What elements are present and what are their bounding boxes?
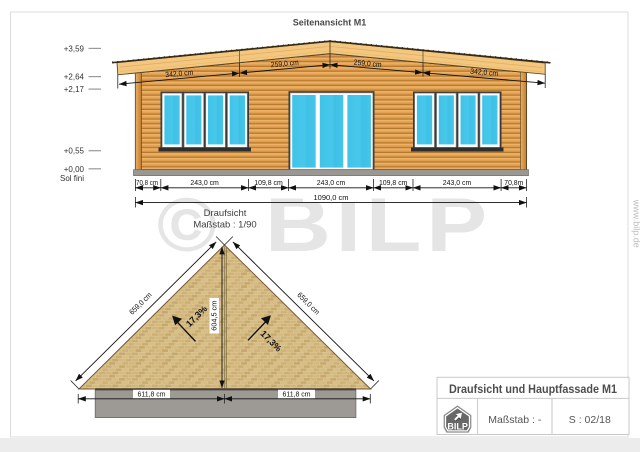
svg-text:+0,00: +0,00 <box>64 165 85 174</box>
svg-text:Draufsicht und Hauptfassade M1: Draufsicht und Hauptfassade M1 <box>449 384 618 396</box>
svg-text:243,0 cm: 243,0 cm <box>443 178 472 187</box>
svg-text:+0,55: +0,55 <box>64 147 85 156</box>
svg-text:S : 02/18: S : 02/18 <box>569 414 611 426</box>
svg-text:www.bilp.de: www.bilp.de <box>632 199 640 248</box>
svg-text:109,8 cm: 109,8 cm <box>254 178 283 187</box>
svg-text:70,8 cm: 70,8 cm <box>136 178 158 187</box>
svg-text:604,5 cm: 604,5 cm <box>210 301 219 331</box>
svg-text:611,8 cm: 611,8 cm <box>138 389 166 398</box>
svg-text:Draufsicht: Draufsicht <box>204 208 247 219</box>
svg-text:Seitenansicht M1: Seitenansicht M1 <box>293 18 367 28</box>
svg-text:Maßstab : -: Maßstab : - <box>488 414 542 426</box>
svg-text:Sol fini: Sol fini <box>60 174 84 183</box>
svg-text:109,8 cm: 109,8 cm <box>379 178 408 187</box>
svg-text:+2,17: +2,17 <box>64 85 85 94</box>
svg-text:+3,59: +3,59 <box>64 44 85 53</box>
svg-text:Maßstab : 1/90: Maßstab : 1/90 <box>193 220 256 231</box>
svg-text:BILP: BILP <box>447 421 468 431</box>
svg-text:243,0 cm: 243,0 cm <box>190 178 219 187</box>
svg-text:243,0 cm: 243,0 cm <box>317 178 346 187</box>
svg-text:+2,64: +2,64 <box>64 73 85 82</box>
svg-text:611,8 cm: 611,8 cm <box>283 389 311 398</box>
svg-text:70,8m: 70,8m <box>504 178 523 187</box>
svg-text:1090,0 cm: 1090,0 cm <box>314 193 349 202</box>
svg-text:BILP: BILP <box>265 182 492 267</box>
